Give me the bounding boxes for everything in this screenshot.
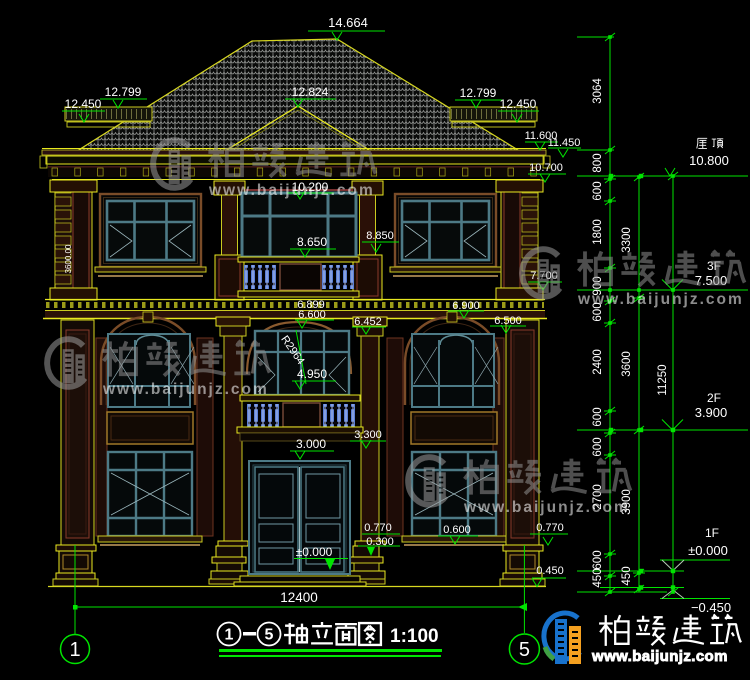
svg-text:3.900: 3.900 — [695, 405, 728, 420]
svg-text:0.600: 0.600 — [443, 524, 471, 536]
svg-text:10.800: 10.800 — [689, 153, 729, 168]
svg-text:600: 600 — [592, 407, 604, 426]
svg-text:3064: 3064 — [592, 78, 604, 104]
svg-text:6.452: 6.452 — [354, 316, 382, 328]
svg-text:5: 5 — [265, 627, 274, 644]
svg-text:3.000: 3.000 — [296, 437, 326, 451]
svg-text:12.799: 12.799 — [460, 86, 497, 100]
svg-text:1:100: 1:100 — [390, 626, 439, 647]
svg-text:1800: 1800 — [592, 219, 604, 245]
svg-text:10.700: 10.700 — [529, 162, 563, 174]
svg-text:5: 5 — [519, 639, 530, 661]
svg-text:3.300: 3.300 — [354, 429, 382, 441]
svg-text:2F: 2F — [707, 391, 721, 405]
svg-text:www.baijunjz.com: www.baijunjz.com — [208, 182, 375, 199]
svg-text:2400: 2400 — [592, 349, 604, 375]
svg-text:600: 600 — [592, 437, 604, 456]
svg-text:12.799: 12.799 — [105, 85, 142, 99]
svg-text:8.850: 8.850 — [366, 230, 394, 242]
svg-text:600: 600 — [592, 550, 604, 569]
svg-text:12.824: 12.824 — [292, 85, 329, 99]
svg-text:±0.000: ±0.000 — [296, 545, 333, 559]
svg-text:12400: 12400 — [280, 590, 318, 605]
svg-text:800: 800 — [592, 153, 604, 172]
svg-text:450: 450 — [621, 566, 633, 585]
svg-text:11.450: 11.450 — [548, 137, 581, 149]
svg-text:0.770: 0.770 — [364, 522, 392, 534]
svg-text:8.650: 8.650 — [297, 235, 327, 249]
svg-text:0.450: 0.450 — [536, 565, 564, 577]
svg-text:3300: 3300 — [621, 227, 633, 253]
svg-text:600: 600 — [592, 181, 604, 200]
svg-text:6.600: 6.600 — [298, 309, 326, 321]
svg-text:6.900: 6.900 — [452, 300, 480, 312]
svg-text:0.300: 0.300 — [366, 536, 394, 548]
svg-text:1: 1 — [69, 639, 80, 661]
svg-text:6.500: 6.500 — [494, 315, 522, 327]
svg-text:3600: 3600 — [621, 351, 633, 377]
svg-text:−0.450: −0.450 — [691, 600, 731, 615]
svg-text:11250: 11250 — [657, 364, 669, 395]
svg-text:0.770: 0.770 — [536, 522, 564, 534]
svg-text:±0.000: ±0.000 — [688, 543, 728, 558]
svg-text:www.baijunjz.com: www.baijunjz.com — [591, 648, 728, 665]
svg-text:12.450: 12.450 — [500, 97, 537, 111]
svg-text:4.950: 4.950 — [297, 367, 327, 381]
svg-text:3600.00: 3600.00 — [64, 244, 73, 273]
svg-text:12.450: 12.450 — [65, 97, 102, 111]
svg-text:14.664: 14.664 — [328, 15, 368, 30]
svg-text:1F: 1F — [705, 526, 719, 540]
svg-text:1: 1 — [225, 627, 234, 644]
svg-text:450: 450 — [592, 568, 604, 587]
